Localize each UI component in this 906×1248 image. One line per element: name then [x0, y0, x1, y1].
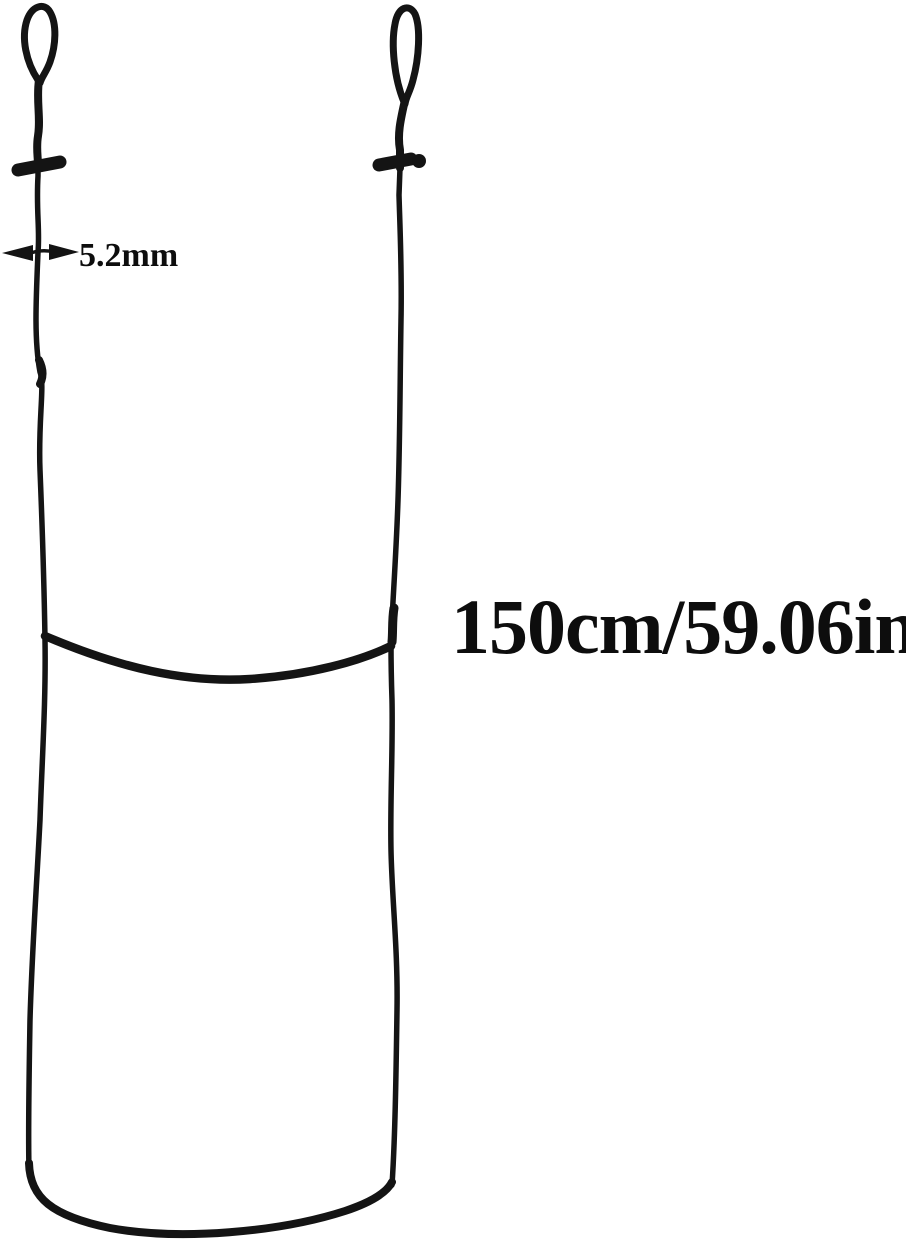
right-toggle-knob: [412, 154, 426, 168]
left-loop-twist: [37, 80, 39, 166]
cord-left-strand: [29, 164, 46, 1170]
arrow-head-right: [49, 244, 79, 260]
product-dimension-image: 5.2mm 150cm/59.06in: [0, 0, 906, 1248]
length-dimension-label: 150cm/59.06in: [451, 588, 906, 666]
bottom-fold: [29, 1163, 392, 1234]
arrow-head-left: [2, 245, 33, 261]
left-loop: [24, 6, 54, 83]
right-toggle-bar: [379, 159, 411, 165]
cord-right-strand: [391, 168, 401, 1185]
middle-sag-strand: [45, 636, 391, 680]
right-strand-knot: [392, 608, 394, 642]
thickness-dimension-label: 5.2mm: [79, 239, 178, 273]
right-loop: [393, 8, 418, 104]
left-strand-knot: [39, 360, 43, 384]
cord-group: [2, 6, 426, 1234]
